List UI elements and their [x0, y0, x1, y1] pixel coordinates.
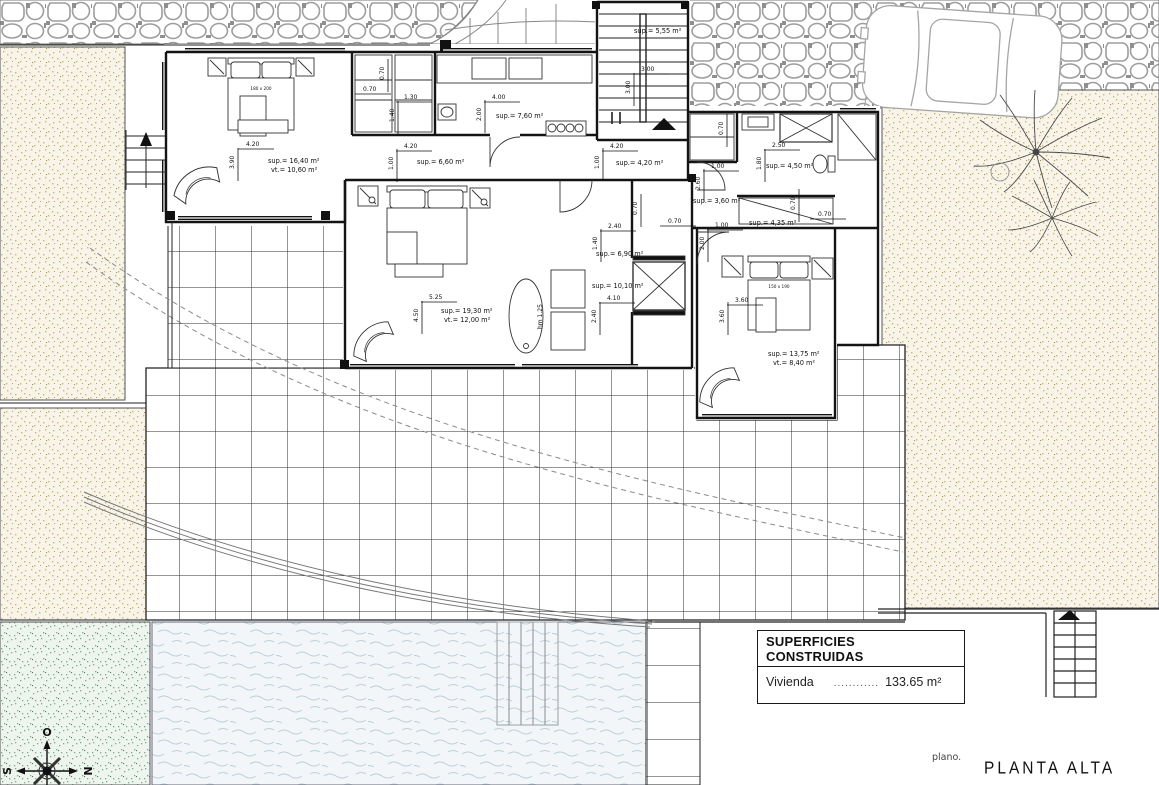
compass-letter-south: S	[1, 767, 14, 775]
dim-label-v: 1.00	[388, 156, 395, 170]
dim-label-v: hm 1.25	[537, 304, 544, 329]
dim-label-h: 1.00	[715, 222, 729, 229]
areas-table-row: Vivienda ............ 133.65 m²	[758, 667, 964, 703]
balcony-tiles	[168, 222, 345, 368]
floor-plan-sheet: O S N sup.= 16,40 m²vt.= 10,60 m²sup.= 6…	[0, 0, 1159, 785]
dim-label-h: 4.00	[492, 94, 506, 101]
dim-label-h: 0.70	[818, 211, 832, 218]
dim-label-h: 2.40	[608, 223, 622, 230]
dim-label-h: 4.20	[246, 141, 260, 148]
room-area-label: sup.= 16,40 m²	[268, 157, 320, 165]
areas-table: SUPERFICIES CONSTRUIDAS Vivienda .......…	[757, 630, 965, 704]
dim-label-h: 0.70	[363, 86, 377, 93]
room-area-label: sup.= 4,50 m²	[766, 162, 814, 170]
room-area-label: sup.= 3,60 m²	[693, 197, 741, 205]
dim-label-v: 1.00	[594, 155, 601, 169]
dim-label-v: 1.40	[592, 236, 599, 250]
dim-label-v: 1.80	[756, 156, 763, 170]
dim-label-h: 4.20	[404, 143, 418, 150]
room-area-label: sup.= 19,30 m²	[441, 307, 493, 315]
areas-table-row-value: 133.65 m²	[885, 675, 941, 689]
dim-label-v: 0.70	[790, 196, 797, 210]
dim-label-v: 0.70	[718, 121, 725, 135]
dim-label-v: 2.00	[699, 236, 706, 250]
car-outline	[856, 4, 1064, 120]
dim-label-h: 4.20	[610, 143, 624, 150]
lawn-bottom-left	[0, 622, 150, 785]
plan-title: PLANTA ALTA	[984, 759, 1115, 780]
dim-label-v: 0.70	[379, 66, 386, 80]
floor-plan-drawing: O S N sup.= 16,40 m²vt.= 10,60 m²sup.= 6…	[0, 0, 1159, 785]
compass-letter-north: N	[81, 766, 94, 775]
dim-label-h: 4.10	[607, 295, 621, 302]
pool-water	[152, 622, 648, 785]
dim-label-h: 3.60	[735, 297, 749, 304]
room-area-label: sup.= 6,60 m²	[417, 158, 465, 166]
entry-steps-left	[126, 130, 166, 190]
dim-label-v: 2.60	[695, 176, 702, 190]
room-area-label: sup.= 4,20 m²	[616, 159, 664, 167]
bed-size-label: 150 x 190	[768, 284, 789, 289]
walkway-tiles-bottom	[646, 622, 700, 785]
dim-label-v: 4.50	[413, 308, 420, 322]
areas-table-row-dots: ............	[834, 678, 879, 689]
bed-size-label: 180 x 200	[250, 86, 271, 91]
dim-label-h: 2.50	[772, 142, 786, 149]
room-area-label: sup.= 4,35 m²	[749, 219, 797, 227]
room-area-label: sup.= 5,55 m²	[634, 27, 682, 35]
dim-label-h: 1.30	[404, 94, 418, 101]
dim-label-h: 3.00	[641, 66, 655, 73]
dim-label-h: 5.25	[429, 294, 443, 301]
dim-label-v: 3.60	[719, 309, 726, 323]
dim-label-v: 3.00	[625, 80, 632, 94]
room-area-label: vt.= 8,40 m²	[773, 359, 815, 367]
dim-label-v: 2.40	[591, 309, 598, 323]
room-area-label: sup.= 7,60 m²	[496, 112, 544, 120]
areas-table-header: SUPERFICIES CONSTRUIDAS	[758, 631, 964, 667]
dim-label-v: 3.90	[229, 155, 236, 169]
dim-label-h: 0.70	[668, 218, 682, 225]
cobblestone-driveway-left	[0, 0, 478, 44]
room-area-label: sup.= 13,75 m²	[768, 350, 820, 358]
room-area-label: sup.= 10,10 m²	[592, 282, 644, 290]
room-area-label: vt.= 10,60 m²	[271, 166, 318, 174]
garden-sand-left-upper	[0, 47, 125, 400]
room-area-label: sup.= 6,90 m²	[596, 250, 644, 258]
compass-letter-west: O	[42, 726, 51, 739]
dim-label-h: 1.00	[711, 163, 725, 170]
room-area-label: vt.= 12,00 m²	[444, 316, 491, 324]
plano-label: plano.	[932, 752, 961, 763]
garden-sand-right	[882, 90, 1159, 608]
dim-label-v: 1.40	[389, 108, 396, 122]
areas-table-row-label: Vivienda	[766, 675, 814, 689]
dim-label-v: 0.70	[632, 201, 639, 215]
dim-label-v: 2.00	[476, 107, 483, 121]
